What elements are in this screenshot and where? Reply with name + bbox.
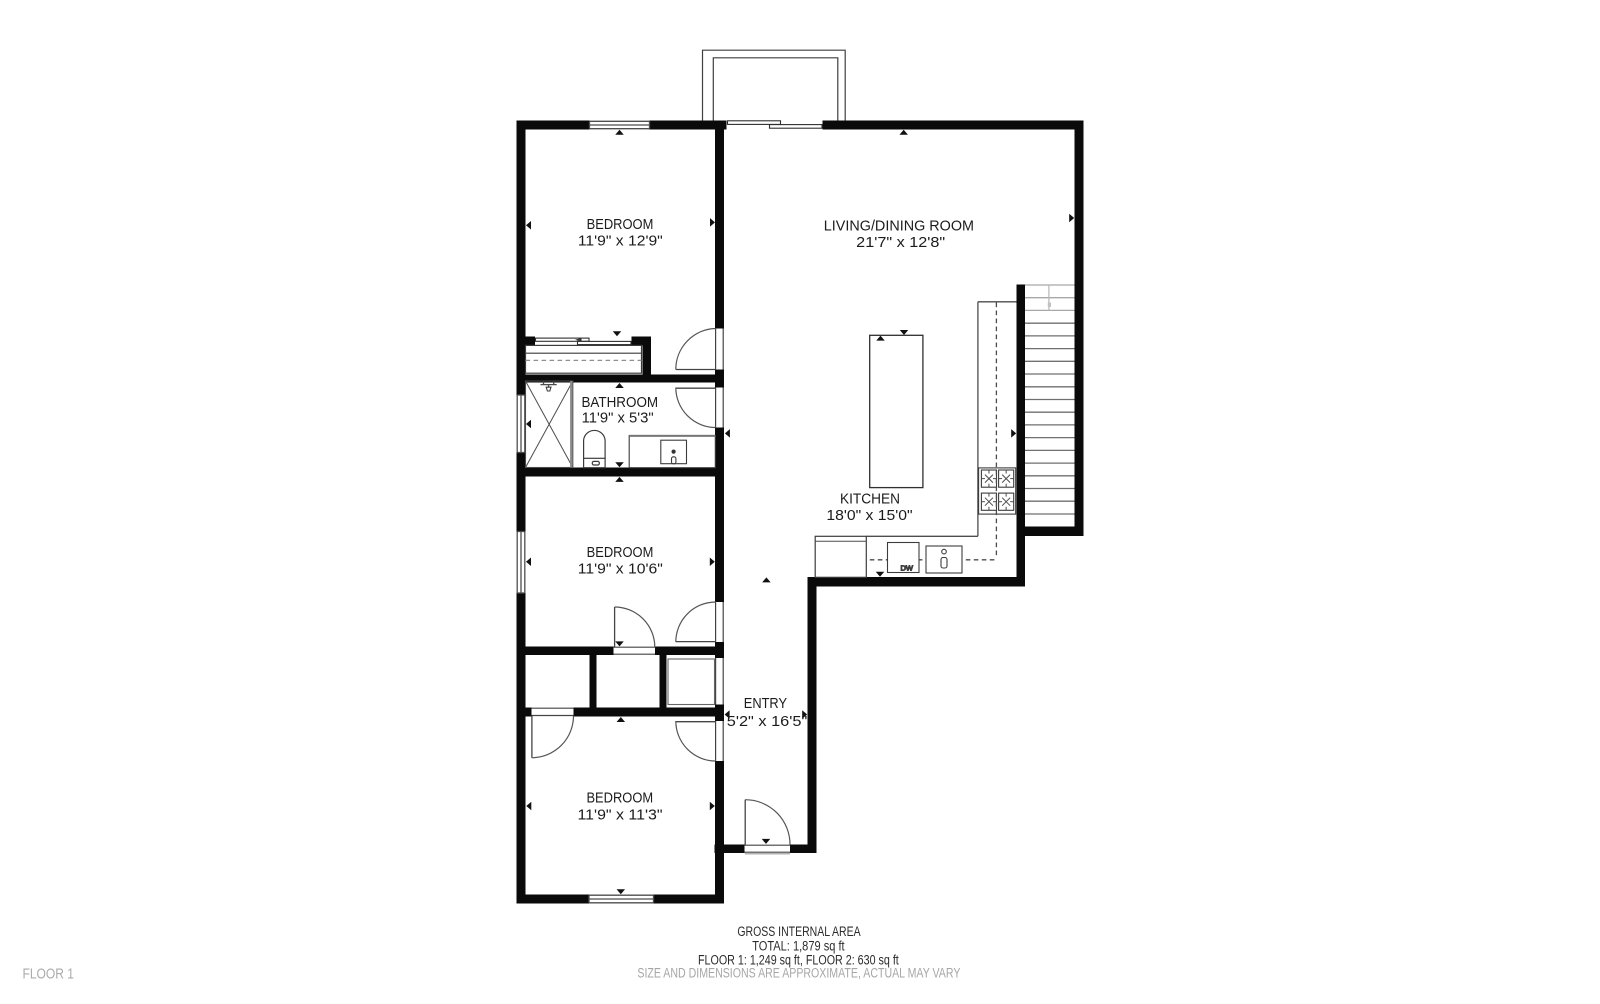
svg-text:ENTRY: ENTRY <box>744 696 788 712</box>
svg-text:TOTAL: 1,879 sq ft: TOTAL: 1,879 sq ft <box>752 939 845 954</box>
svg-text:11'9" x 11'3": 11'9" x 11'3" <box>578 808 663 824</box>
svg-text:11'9" x 5'3": 11'9" x 5'3" <box>582 411 654 427</box>
svg-text:BATHROOM: BATHROOM <box>581 395 658 411</box>
svg-text:GROSS INTERNAL AREA: GROSS INTERNAL AREA <box>737 924 860 939</box>
svg-text:KITCHEN: KITCHEN <box>840 492 900 508</box>
svg-text:11'9" x 12'9": 11'9" x 12'9" <box>578 234 663 250</box>
svg-text:18'0" x 15'0": 18'0" x 15'0" <box>826 508 912 524</box>
svg-text:BEDROOM: BEDROOM <box>586 791 653 807</box>
svg-text:FLOOR 1: FLOOR 1 <box>23 966 75 983</box>
svg-text:BEDROOM: BEDROOM <box>587 545 654 561</box>
svg-text:DW: DW <box>901 564 914 573</box>
svg-text:SIZE AND DIMENSIONS ARE APPROX: SIZE AND DIMENSIONS ARE APPROXIMATE, ACT… <box>637 965 960 980</box>
svg-text:BEDROOM: BEDROOM <box>587 217 654 233</box>
svg-text:21'7" x 12'8": 21'7" x 12'8" <box>856 235 945 251</box>
svg-text:11'9" x 10'6": 11'9" x 10'6" <box>578 562 663 578</box>
svg-text:5'2" x 16'5": 5'2" x 16'5" <box>727 714 808 730</box>
svg-text:LIVING/DINING ROOM: LIVING/DINING ROOM <box>824 219 974 235</box>
